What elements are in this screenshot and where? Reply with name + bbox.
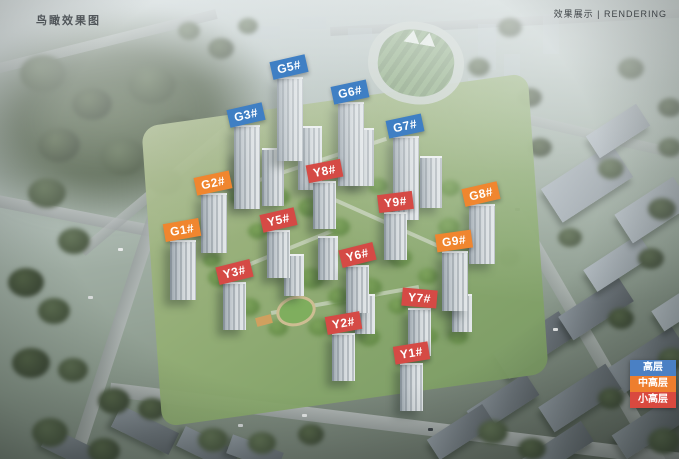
car <box>118 248 123 251</box>
residential-tower-Y1 <box>400 363 423 411</box>
legend-item-high: 高层 <box>630 360 676 376</box>
tree-cluster <box>12 348 50 378</box>
tree-cluster <box>608 308 634 329</box>
tree-cluster <box>658 98 679 117</box>
tree-cluster <box>100 138 146 175</box>
tree-cluster <box>658 138 679 157</box>
tree-cluster <box>58 358 88 382</box>
residential-tower-G5 <box>277 77 303 161</box>
aerial-rendering: G5#G6#G3#G7#G2#Y8#Y9#G8#Y5#G1#G9#Y6#Y3#Y… <box>0 0 679 459</box>
residential-tower-Y8 <box>313 181 336 229</box>
tree-cluster <box>648 198 676 220</box>
tree-cluster <box>638 248 664 269</box>
tree-cluster <box>8 268 44 297</box>
tree-cluster <box>28 178 66 208</box>
tree-cluster <box>648 428 679 454</box>
residential-tower <box>318 236 338 280</box>
distant-building <box>543 14 559 54</box>
residential-tower-G9 <box>442 251 468 311</box>
caption-birdseye: 鸟瞰效果图 <box>36 12 101 28</box>
tree-cluster <box>558 228 582 247</box>
building-label-Y7: Y7# <box>401 288 437 309</box>
legend-item-small_high: 小高层 <box>630 392 676 408</box>
car <box>428 428 433 431</box>
tree-cluster <box>178 22 200 40</box>
residential-tower-G1 <box>170 240 196 300</box>
residential-tower-G2 <box>201 193 227 253</box>
tree-cluster <box>238 18 258 34</box>
legend-item-mid_high: 中高层 <box>630 376 676 392</box>
distant-building <box>300 17 326 29</box>
tree-cluster <box>38 128 80 162</box>
garden-tree <box>203 253 221 267</box>
car <box>302 414 307 417</box>
legend: 高层中高层小高层 <box>630 360 676 408</box>
tree-cluster <box>468 58 490 76</box>
car <box>238 424 243 427</box>
car <box>553 328 558 331</box>
caption-rendering: 效果展示 | RENDERING <box>554 7 667 20</box>
tree-cluster <box>618 58 644 79</box>
distant-building <box>348 28 372 40</box>
tree-cluster <box>72 88 112 120</box>
garden-tree <box>418 268 438 284</box>
residential-tower-Y3 <box>223 282 246 330</box>
tree-cluster <box>128 66 176 104</box>
tree-cluster <box>498 18 522 37</box>
tree-cluster <box>208 38 234 59</box>
tree-cluster <box>88 438 120 459</box>
stadium <box>362 14 471 111</box>
tree-cluster <box>38 298 70 324</box>
residential-tower-G8 <box>469 204 495 264</box>
tree-cluster <box>20 55 66 92</box>
tree-cluster <box>598 158 624 179</box>
tree-cluster <box>298 424 324 445</box>
residential-tower-Y9 <box>384 212 407 260</box>
residential-tower-Y5 <box>267 230 290 278</box>
tree-cluster <box>58 228 90 254</box>
residential-tower-Y6 <box>346 265 369 313</box>
car <box>88 296 93 299</box>
tree-cluster <box>518 438 546 459</box>
tree-cluster <box>98 388 130 414</box>
tree-cluster <box>32 418 68 447</box>
tree-cluster <box>598 388 624 409</box>
tree-cluster <box>248 432 276 454</box>
residential-tower <box>420 156 442 208</box>
tree-cluster <box>478 420 508 444</box>
garden-tree <box>440 180 460 196</box>
tree-cluster <box>198 428 228 452</box>
residential-tower-Y2 <box>332 333 355 381</box>
residential-tower-G3 <box>234 125 260 209</box>
